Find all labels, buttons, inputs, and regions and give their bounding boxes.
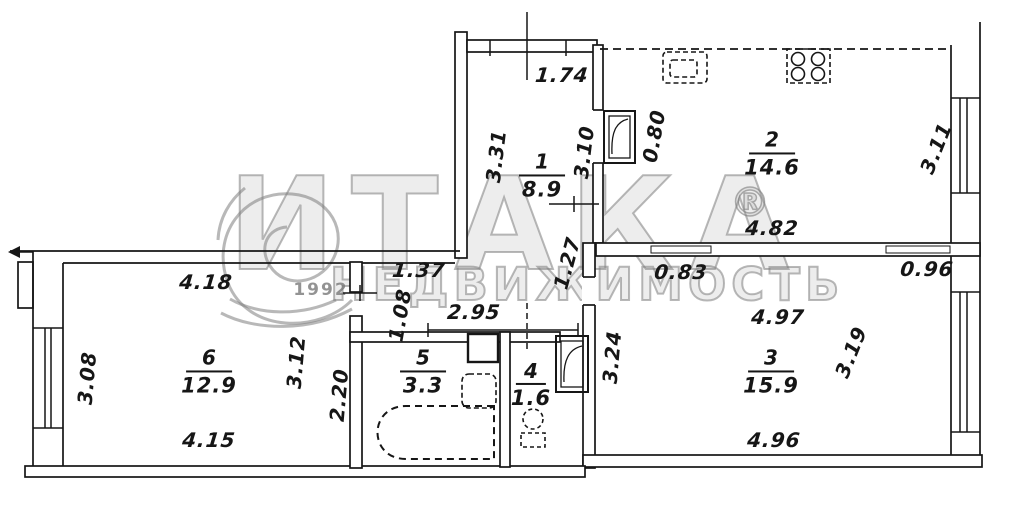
room4-area: 1.6 <box>511 385 551 410</box>
wall-arrow <box>8 246 33 258</box>
walls <box>10 22 982 477</box>
room4-number: 4 <box>516 360 546 385</box>
stove-icon <box>787 49 830 83</box>
room4-label: 4 1.6 <box>511 360 551 410</box>
dim-top-hall-width: 1.74 <box>534 63 590 87</box>
room5-label: 5 3.3 <box>400 346 446 397</box>
room3-area: 15.9 <box>743 372 799 397</box>
dim-corridor-width-a: 1.37 <box>391 258 447 282</box>
toilet-icon <box>521 409 545 447</box>
door-leaf-room3-icon <box>556 336 588 392</box>
room2-number: 2 <box>749 128 795 154</box>
window-room6-left <box>33 328 63 428</box>
room3-number: 3 <box>748 346 794 372</box>
dim-room6-window: 3.08 <box>73 350 102 405</box>
room3-label: 3 15.9 <box>743 346 799 397</box>
room2-label: 2 14.6 <box>744 128 800 179</box>
dim-room3-bottom: 4.96 <box>746 428 802 452</box>
dim-corridor-width-b: 2.95 <box>446 300 502 324</box>
dim-room3-door-left: 0.83 <box>653 260 709 284</box>
room1-area: 8.9 <box>519 176 565 201</box>
bathtub-icon <box>378 406 495 459</box>
dim-room6-top: 4.18 <box>178 270 234 294</box>
room6-number: 6 <box>186 346 232 372</box>
dim-room3-door-right: 0.96 <box>899 257 955 281</box>
duct-shaft <box>468 334 498 362</box>
room6-label: 6 12.9 <box>181 346 237 397</box>
window-kitchen-right <box>951 98 980 193</box>
dim-kitchen-width: 4.82 <box>744 216 800 240</box>
dim-room6-right: 3.12 <box>282 334 311 389</box>
dim-room6-right2: 2.20 <box>325 367 354 422</box>
bath-sink-icon <box>462 374 496 408</box>
window-room3-right <box>951 292 980 432</box>
room5-number: 5 <box>400 346 446 372</box>
floorplan-linework <box>0 0 1024 507</box>
room1-label: 1 8.9 <box>519 150 565 201</box>
room5-area: 3.3 <box>400 372 446 397</box>
dim-room3-top: 4.97 <box>750 305 806 329</box>
floorplan-scan: ИТАКА ® НЕДВИЖИМОСТЬ 1992 <box>0 0 1024 507</box>
room1-number: 1 <box>519 150 565 176</box>
dim-room3-left: 3.24 <box>598 329 627 384</box>
room6-area: 12.9 <box>181 372 237 397</box>
door-leaf-kitchen-icon <box>604 111 635 163</box>
dim-room6-bottom: 4.15 <box>181 428 237 452</box>
room2-area: 14.6 <box>744 154 800 179</box>
kitchen-sink-icon <box>663 52 707 83</box>
